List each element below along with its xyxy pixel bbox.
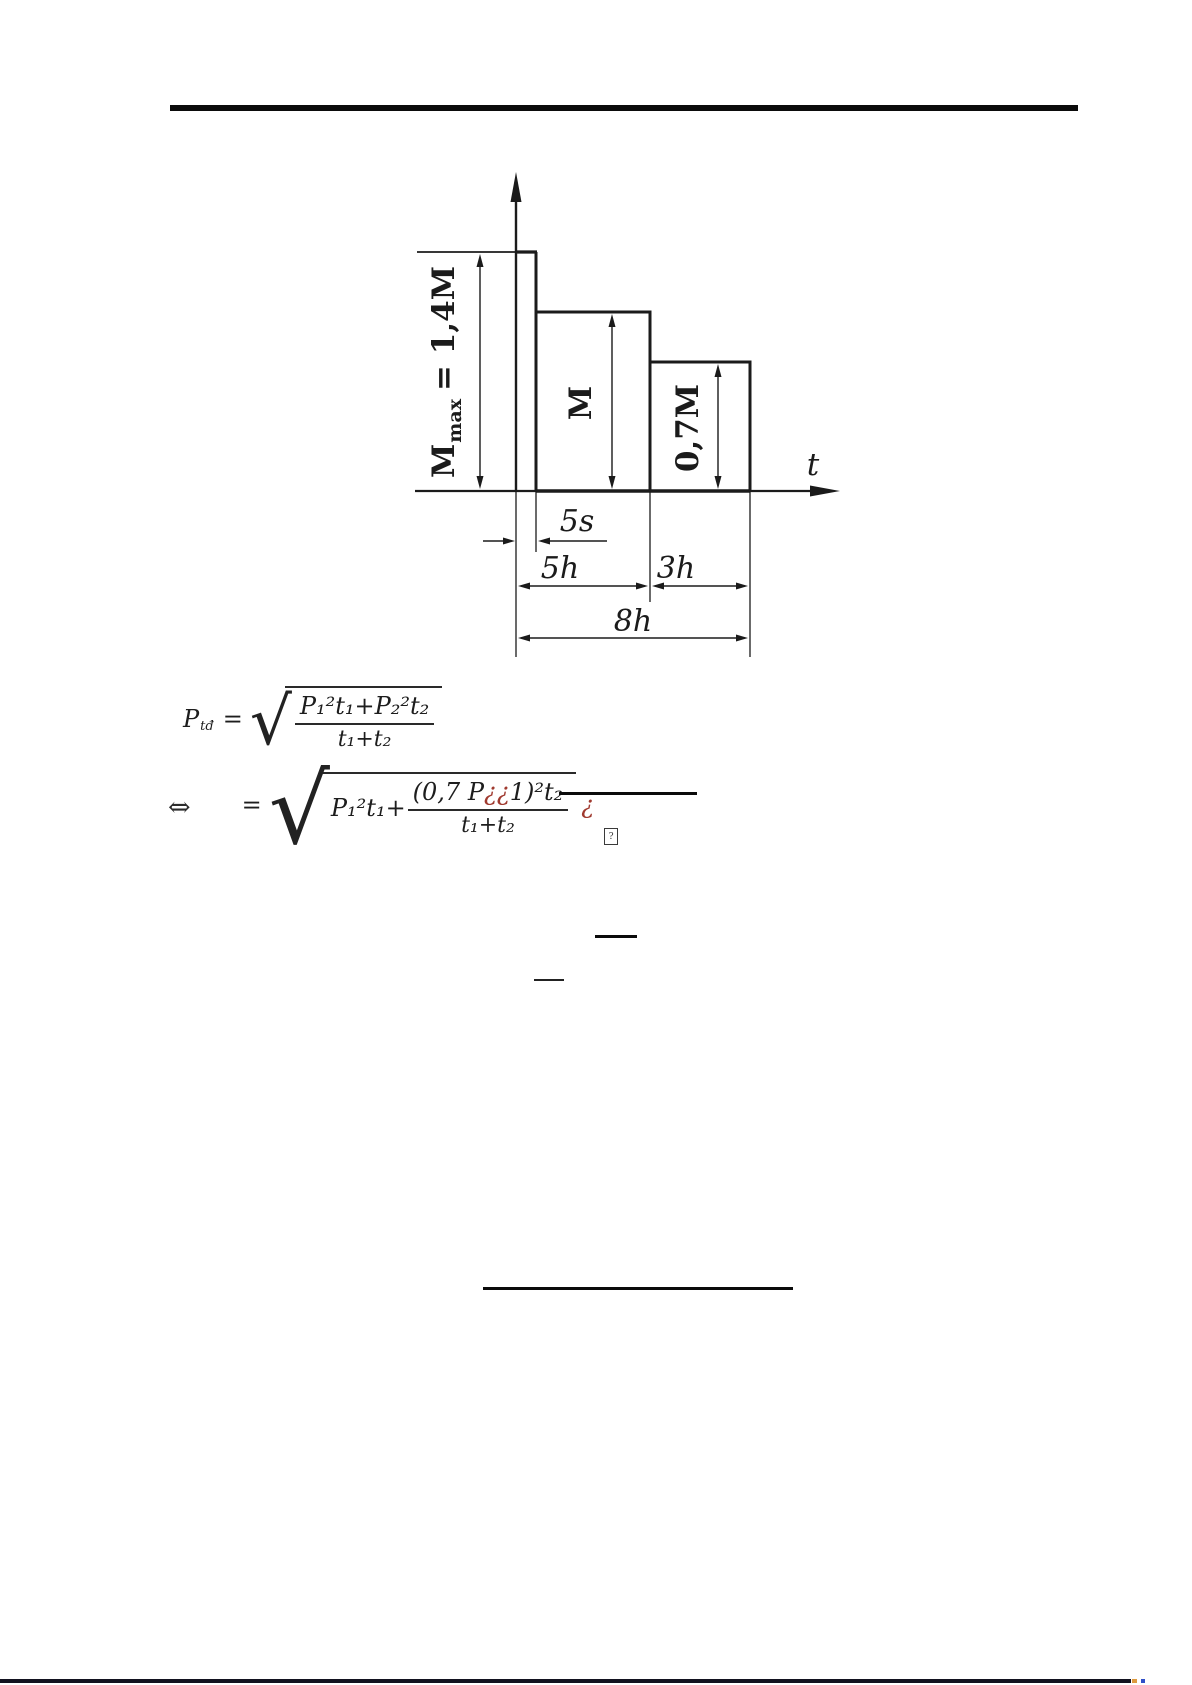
mmax-arrowhead-down <box>477 476 484 489</box>
mmax-bar-label: Mmax= 1,4M <box>426 266 466 478</box>
formula1-lhs-subscript: tđ <box>200 719 214 734</box>
dim-5s-label: 5s <box>560 504 594 539</box>
dim-5s-arrowhead-right <box>503 538 515 545</box>
mmax-label-eq: = 1,4M <box>426 266 462 391</box>
formula1-radical-sign: √ <box>250 694 292 750</box>
formula2-denominator: t₁+t₂ <box>461 811 515 838</box>
formula2-numerator-left: (0,7 P <box>413 778 484 806</box>
m-arrowhead-down <box>609 476 616 489</box>
diagram-lines <box>415 198 816 657</box>
dim-3h-arrowhead-right <box>736 583 748 590</box>
y-axis-arrowhead <box>511 172 522 202</box>
mmax-arrowhead-up <box>477 254 484 267</box>
dim-8h-arrowhead-left <box>518 635 530 642</box>
equivalence-arrow-icon: ⇔ <box>168 792 191 823</box>
formula1-radicand: P₁²t₁+P₂²t₂ t₁+t₂ <box>285 686 442 752</box>
formula2-radicand: P₁²t₁+ (0,7 P¿¿1)²t₂ t₁+t₂ <box>321 772 576 838</box>
top-horizontal-rule <box>170 105 1078 111</box>
m07-arrowhead-down <box>715 476 722 489</box>
m-arrowhead-up <box>609 314 616 327</box>
mmax-label-sub: max <box>444 398 466 442</box>
missing-glyph-box: ? <box>604 828 618 845</box>
m-bar-label: M <box>563 386 599 420</box>
dim-8h-arrowhead-right <box>736 635 748 642</box>
formula2-equals-sign: = <box>242 791 262 819</box>
load-step-diagram: t Mmax= 1,4M M 0,7M 5s 5h 3h 8h <box>380 160 860 670</box>
blank-underline-1 <box>559 792 697 795</box>
blank-underline-4 <box>483 1287 793 1290</box>
missing-glyph-char: ? <box>609 832 614 842</box>
dim-8h-label: 8h <box>614 604 652 639</box>
formula2-numerator-right: 1)²t₂ <box>510 778 564 806</box>
formula2-numerator-artifact: ¿¿ <box>484 778 510 806</box>
formula-expanded: ⇔ = √ P₁²t₁+ (0,7 P¿¿1)²t₂ t₁+t₂ ¿ ? <box>168 765 618 845</box>
formula1-numerator: P₁²t₁+P₂²t₂ <box>295 692 434 725</box>
m07-bar-label: 0,7M <box>670 384 706 472</box>
formula1-lhs-symbol: P <box>183 705 199 733</box>
dim-5h-arrowhead-left <box>518 583 530 590</box>
dim-5h-arrowhead-right <box>636 583 648 590</box>
mmax-label-main: M <box>426 444 462 478</box>
dim-3h-label: 3h <box>657 551 695 586</box>
formula-equivalent-power: Ptđ = √ P₁²t₁+P₂²t₂ t₁+t₂ <box>183 686 442 752</box>
x-axis-arrowhead <box>810 486 840 497</box>
formula2-numerator: (0,7 P¿¿1)²t₂ <box>408 778 569 811</box>
formula2-radical-sign: √ <box>269 770 330 850</box>
t-axis-label: t <box>807 447 820 483</box>
document-page: t Mmax= 1,4M M 0,7M 5s 5h 3h 8h Ptđ = √ … <box>0 0 1192 1685</box>
dim-5h-label: 5h <box>541 551 579 586</box>
formula2-trailing-artifact: ¿ <box>581 791 594 819</box>
dim-5s-arrowhead-left <box>538 538 550 545</box>
formula2-first-term: P₁²t₁+ <box>331 794 406 822</box>
blank-underline-2 <box>595 935 637 938</box>
formula1-equals-sign: = <box>223 705 243 733</box>
blank-underline-3 <box>534 979 564 981</box>
m07-arrowhead-up <box>715 364 722 377</box>
formula2-radicand-row: P₁²t₁+ (0,7 P¿¿1)²t₂ t₁+t₂ <box>331 778 568 838</box>
bottom-horizontal-rule <box>0 1679 1131 1683</box>
scan-artifact-orange-dot <box>1132 1679 1137 1683</box>
formula2-fraction: (0,7 P¿¿1)²t₂ t₁+t₂ <box>408 778 569 838</box>
scan-artifact-blue-dot <box>1141 1679 1145 1683</box>
formula1-denominator: t₁+t₂ <box>338 725 392 752</box>
formula1-fraction: P₁²t₁+P₂²t₂ t₁+t₂ <box>295 692 434 752</box>
